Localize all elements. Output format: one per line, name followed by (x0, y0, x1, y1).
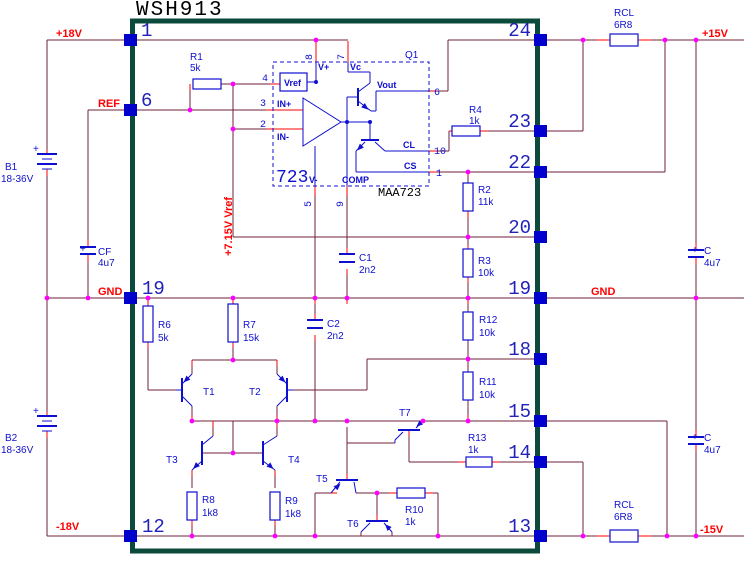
value-C-bot: 4u7 (704, 445, 721, 456)
label-R9: R9 (285, 496, 298, 507)
label-RCL-bot: RCL (614, 500, 634, 511)
label-R13: R13 (468, 433, 487, 444)
label-RCL-top: RCL (614, 8, 634, 19)
ic-723-part-number: MAA723 (378, 186, 421, 200)
label-R12: R12 (479, 315, 498, 326)
plus-C-top: + (692, 245, 698, 256)
pin-pad-24 (534, 34, 547, 46)
label-R11: R11 (479, 377, 497, 388)
icpin-4: 4 (262, 74, 268, 85)
plus-B1: + (33, 144, 39, 155)
resistor-R12 (463, 312, 473, 340)
net-label-m15v: -15V (700, 524, 724, 536)
value-R9: 1k8 (285, 509, 302, 520)
value-R11: 10k (479, 390, 496, 401)
icpin-10: 10 (434, 147, 446, 158)
resistor-R7 (228, 304, 238, 342)
icpin-7: 7 (337, 54, 348, 60)
value-R7: 15k (243, 333, 260, 344)
label-T3: T3 (166, 455, 178, 466)
net-label-vref-rail: +7.15V Vref (223, 197, 235, 256)
transistor-Q1 (348, 72, 429, 111)
pin-pad-18 (534, 353, 547, 365)
pin-label-24: 24 (508, 20, 531, 42)
net-label-p15v: +15V (702, 28, 729, 40)
transistor-T1 (176, 374, 192, 406)
resistor-R3 (463, 249, 473, 277)
capacitors (80, 247, 704, 444)
net-label-m18v: -18V (56, 521, 80, 533)
label-T5: T5 (316, 474, 328, 485)
port-vout: Vout (377, 80, 396, 90)
pin-pad-19R (534, 292, 547, 304)
value-C-top: 4u7 (704, 258, 721, 269)
label-CF: CF (98, 247, 111, 258)
value-R6: 5k (158, 333, 170, 344)
port-cl: CL (403, 140, 415, 150)
icpin-8: 8 (305, 54, 316, 60)
label-R3: R3 (478, 256, 491, 267)
capacitor-C1 (339, 254, 355, 262)
label-T1: T1 (203, 387, 215, 398)
resistor-R2 (463, 183, 473, 211)
resistor-R6 (143, 306, 153, 342)
transistor-T5 (331, 480, 358, 493)
value-CF: 4u7 (98, 258, 115, 269)
port-vplus: V+ (318, 62, 329, 72)
icpin-9: 9 (336, 201, 347, 207)
resistor-R1 (193, 79, 221, 89)
battery-B2 (37, 416, 57, 431)
opamp-triangle (303, 98, 341, 146)
net-label-gnd-left: GND (98, 286, 123, 298)
transistor-T6 (361, 521, 392, 532)
value-B1: 18-36V (1, 174, 34, 185)
net-label-gnd-right: GND (591, 286, 616, 298)
pin-label-19R: 19 (508, 278, 531, 300)
ic-outline-box (133, 21, 538, 551)
label-R1: R1 (190, 52, 203, 63)
net-label-p18v: +18V (56, 28, 83, 40)
pin-label-6: 6 (141, 90, 152, 112)
icpin-3: 3 (260, 99, 266, 110)
label-C1: C1 (359, 253, 372, 264)
pin-label-12: 12 (142, 516, 165, 538)
pin-label-19L: 19 (142, 278, 165, 300)
icpin-5: 5 (304, 201, 315, 207)
resistor-R13 (466, 457, 492, 467)
resistor-R9 (270, 492, 280, 520)
label-R4: R4 (469, 105, 482, 116)
icpin-1: 1 (436, 169, 442, 180)
port-comp: COMP (342, 175, 369, 185)
plus-C-bot: + (692, 432, 698, 443)
label-B2: B2 (5, 433, 18, 444)
component-labels: R1 5k R4 1k R2 11k R3 10k R12 10k R11 10… (1, 8, 721, 530)
battery-B1 (37, 154, 57, 169)
value-RCL-top: 6R8 (614, 20, 633, 31)
label-T6: T6 (347, 519, 359, 530)
circuit-schematic: WSH913 1 6 19 12 24 23 22 20 19 18 15 14… (0, 0, 747, 567)
net-label-ref: REF (98, 98, 120, 110)
icpin-2: 2 (260, 120, 266, 131)
pin-label-15: 15 (508, 401, 531, 423)
label-T7: T7 (399, 408, 411, 419)
label-R7: R7 (243, 320, 256, 331)
pin-pad-20 (534, 231, 547, 243)
label-C-bot: C (704, 433, 711, 444)
pin-pad-22 (534, 166, 547, 178)
transistor-T2 (277, 374, 293, 406)
pin-label-13: 13 (508, 516, 531, 538)
pin-pad-23 (534, 125, 547, 137)
resistor-R11 (463, 372, 473, 400)
label-T4: T4 (288, 455, 300, 466)
pin-label-14: 14 (508, 442, 531, 464)
pin-label-22: 22 (508, 152, 531, 174)
transistor-T4 (263, 436, 277, 470)
value-R4: 1k (469, 116, 481, 127)
value-R1: 5k (190, 63, 202, 74)
port-vc: Vc (350, 62, 361, 72)
label-C2: C2 (327, 319, 340, 330)
schematic-page: WSH913 1 6 19 12 24 23 22 20 19 18 15 14… (0, 0, 747, 567)
pin-pad-19L (124, 292, 137, 304)
pin-pad-1 (124, 34, 137, 46)
port-vminus: V- (309, 175, 318, 185)
label-R2: R2 (478, 185, 491, 196)
label-B1: B1 (5, 162, 18, 173)
transistor-cl (356, 122, 429, 172)
port-inp: IN+ (277, 99, 291, 109)
pin-pad-13 (534, 530, 547, 542)
port-cs: CS (404, 161, 417, 171)
label-T2: T2 (249, 387, 261, 398)
pin-pad-12 (124, 530, 137, 542)
value-R2: 11k (478, 197, 494, 208)
resistor-R8 (187, 492, 197, 520)
resistor-RCL-bot (610, 530, 638, 542)
plus-B2: + (33, 406, 39, 417)
label-R10: R10 (405, 505, 424, 516)
pin-label-18: 18 (508, 339, 531, 361)
icpin-6: 6 (434, 88, 440, 99)
value-RCL-bot: 6R8 (614, 512, 633, 523)
pin-label-1: 1 (141, 20, 152, 42)
capacitor-C2 (307, 320, 323, 328)
pin-pad-6 (124, 104, 137, 116)
value-R3: 10k (478, 268, 495, 279)
value-R8: 1k8 (202, 508, 219, 519)
ic-723-big-label: 723 (276, 168, 308, 188)
value-B2: 18-36V (1, 445, 34, 456)
label-R8: R8 (202, 495, 215, 506)
pin-pad-15 (534, 415, 547, 427)
value-C1: 2n2 (359, 265, 376, 276)
resistor-RCL-top (610, 34, 638, 46)
port-inm: IN- (277, 132, 289, 142)
page-title: WSH913 (136, 0, 224, 22)
pin-label-20: 20 (508, 217, 531, 239)
pin-label-23: 23 (508, 111, 531, 133)
plus-CF: + (80, 244, 86, 255)
value-R12: 10k (479, 328, 496, 339)
label-Q1: Q1 (405, 50, 419, 61)
value-C2: 2n2 (327, 331, 344, 342)
value-R13: 1k (468, 445, 480, 456)
pin-pad-14 (534, 456, 547, 468)
label-C-top: C (704, 246, 711, 257)
value-R10: 1k (405, 517, 417, 528)
port-vref: Vref (284, 78, 302, 88)
resistor-R4 (452, 126, 480, 136)
resistor-R10 (397, 488, 425, 498)
label-R6: R6 (158, 320, 171, 331)
